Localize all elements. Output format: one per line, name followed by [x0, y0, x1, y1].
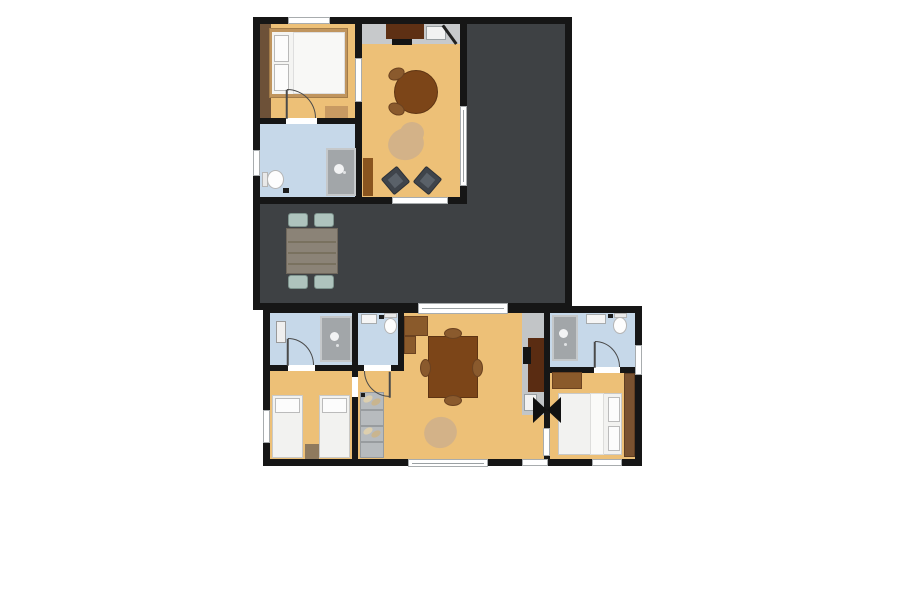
bathroom-drain-upper: [283, 188, 289, 193]
deck-chair-4: [314, 275, 334, 289]
hall-cabinet-a: [404, 316, 428, 336]
living-window-north-glass: [422, 308, 504, 309]
twin-bedroom-door-gap: [352, 377, 358, 397]
deck-table-plank-3: [288, 263, 336, 265]
bed-r-fold: [590, 393, 604, 455]
deck-chair-2: [314, 213, 334, 227]
bathroom-a-door-leaf: [287, 339, 289, 366]
shelf-dot: [361, 393, 365, 397]
bathroom-window-west: [253, 150, 260, 176]
shower-r-dot: [564, 343, 567, 346]
deck-chair-3: [288, 275, 308, 289]
interior-window: [355, 58, 362, 102]
kitchen-appliance: [386, 24, 424, 39]
bed-r-pillow-2: [608, 426, 620, 451]
wardrobe-r: [624, 373, 635, 457]
bedroom-bench: [325, 106, 348, 118]
dining-chair-south: [444, 395, 462, 406]
deck-dining-table: [286, 228, 338, 274]
sink-b: [361, 314, 377, 324]
toilet-bowl-upper: [267, 170, 284, 189]
right-bathroom-door-leaf: [594, 342, 596, 368]
wall-panel-white: [543, 428, 550, 456]
hall-cabinet-b: [404, 336, 416, 354]
kitchenette-cooktop: [523, 347, 531, 364]
twin-window-west: [263, 410, 270, 443]
shower-upper-dot: [343, 171, 346, 174]
living-window-south-glass: [412, 463, 484, 464]
bed-r-pillow-1: [608, 397, 620, 422]
twin-nightstand: [305, 444, 319, 459]
toilet-bowl-b: [384, 318, 397, 334]
kitchen-cooktop: [392, 39, 412, 45]
dining-chair-west: [420, 359, 431, 377]
deck-chair-1: [288, 213, 308, 227]
shower-a-drain: [330, 332, 339, 341]
kitchen-window-east-glass: [463, 110, 464, 182]
bedroom-bathroom-door-gap: [286, 118, 317, 124]
twin-bed-1-pillow: [275, 398, 300, 413]
kitchen-sideboard: [363, 158, 373, 196]
shower-r: [552, 315, 578, 361]
bathroom-b-door-leaf: [389, 372, 391, 398]
dining-table: [428, 336, 478, 398]
bathroom-a-door-gap: [288, 365, 315, 371]
right-bathroom-door-gap: [594, 367, 620, 373]
dining-chair-north: [444, 328, 462, 339]
dining-chair-east: [472, 359, 483, 377]
entry-door-south: [522, 459, 548, 466]
toilet-bowl-r: [613, 317, 627, 334]
shoe-shelf-divider-2: [361, 425, 383, 427]
bed-pillow-1: [274, 35, 289, 62]
right-window-east: [635, 345, 642, 375]
bedroom-window: [288, 17, 330, 24]
bed-pillow-2: [274, 64, 289, 91]
deck-table-plank-1: [288, 241, 336, 243]
shoe-shelf-divider-3: [361, 441, 383, 443]
kitchen-rug-b: [400, 122, 424, 144]
double-door-wing-left: [533, 397, 547, 423]
right-bedroom-window-south: [592, 459, 622, 466]
kitchen-window-south: [392, 197, 448, 204]
twin-bed-2-pillow: [322, 398, 347, 413]
bed-duvet: [293, 32, 345, 94]
shoe-shelf-divider-1: [361, 409, 383, 411]
sink-r: [586, 314, 606, 324]
deck-table-plank-2: [288, 252, 336, 254]
bedroom-door-leaf: [286, 90, 288, 119]
bathroom-r-dot: [608, 314, 613, 318]
floorplan-canvas: [0, 0, 900, 600]
double-door-wing-right: [547, 397, 561, 423]
radiator: [276, 321, 286, 343]
desk-r: [552, 372, 582, 389]
shower-a-dot: [336, 344, 339, 347]
shower-r-drain: [559, 329, 568, 338]
